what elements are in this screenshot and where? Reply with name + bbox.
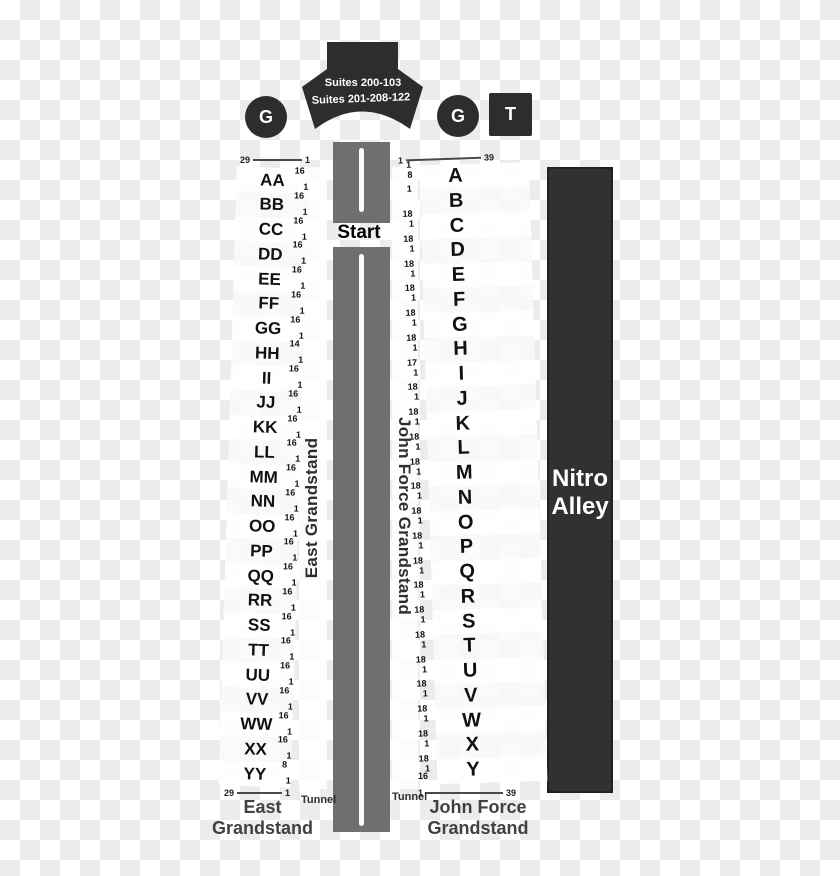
- seat-num-upper: 18: [404, 456, 420, 466]
- row-label: F: [423, 287, 496, 312]
- seat-num-upper: 16: [286, 264, 302, 274]
- seat-num-upper: 16: [289, 165, 305, 175]
- seat-num-lower: 1: [409, 515, 423, 525]
- john-force-bottom-label: John Force Grandstand: [410, 797, 546, 839]
- john-force-row-G[interactable]: G181: [424, 310, 535, 338]
- seat-num-lower: 1: [410, 565, 424, 575]
- start-line-label: Start: [329, 222, 389, 244]
- row-label: N: [429, 485, 502, 510]
- seat-num-upper: 16: [285, 289, 301, 299]
- seat-num-upper: 16: [275, 635, 291, 645]
- seat-num-upper: 16: [282, 388, 298, 398]
- gate-badge-right-label: G: [451, 106, 465, 127]
- seat-num-upper: 16: [278, 536, 294, 546]
- seat-num-upper: 18: [409, 629, 425, 639]
- row-label: E: [422, 263, 495, 288]
- seat-num-upper: 16: [273, 685, 289, 695]
- seat-num-lower: 1: [403, 342, 417, 352]
- seat-num-upper: 18: [411, 703, 427, 713]
- seat-num-upper: 16: [286, 239, 302, 249]
- seat-num-lower: 1: [413, 664, 427, 674]
- seat-num-upper: 18: [410, 654, 426, 664]
- john-force-row-W[interactable]: W181: [435, 706, 546, 734]
- seat-num-lower: 1: [400, 243, 414, 253]
- john-force-row-Y[interactable]: Y181: [437, 755, 548, 783]
- seat-num-upper: 16: [283, 363, 299, 373]
- seat-num-upper: 18: [402, 406, 418, 416]
- seat-num-upper: 18: [408, 604, 424, 614]
- seat-num-upper: 18: [402, 382, 418, 392]
- row-label: Y: [437, 757, 510, 782]
- gate-badge-left[interactable]: G: [245, 96, 287, 138]
- seat-num-lower: 1: [409, 540, 423, 550]
- row-label: H: [424, 337, 497, 362]
- john-force-row-F[interactable]: F181: [423, 285, 534, 313]
- seat-num-upper: 18: [399, 308, 415, 318]
- nitro-alley-label: Nitro Alley: [549, 465, 611, 521]
- seat-num-upper: 16: [276, 586, 292, 596]
- seat-num-upper: 16: [284, 314, 300, 324]
- seat-num-upper: 16: [288, 190, 304, 200]
- row-label: L: [427, 436, 500, 461]
- seat-num-lower: 1: [411, 614, 425, 624]
- john-force-row-N[interactable]: N181: [429, 483, 540, 511]
- john-force-row-A[interactable]: A18: [419, 162, 530, 190]
- seat-num-upper: 18: [399, 283, 415, 293]
- seat-num-upper: 18: [405, 481, 421, 491]
- seat-num-lower: 1: [404, 367, 418, 377]
- john-force-row-E[interactable]: E181: [422, 261, 533, 289]
- row-label: Q: [431, 560, 504, 585]
- john-force-row-M[interactable]: M181: [428, 458, 539, 486]
- row-label: T: [433, 634, 506, 659]
- seat-num-lower: 1: [277, 775, 291, 785]
- seat-num-upper: 16: [281, 413, 297, 423]
- gate-badge-right[interactable]: G: [437, 95, 479, 137]
- john-force-rows[interactable]: A18B1C181D181E181F181G181H181I171J181K18…: [395, 158, 554, 797]
- seat-num-lower: 1: [414, 689, 428, 699]
- seat-num-lower: 1: [400, 219, 414, 229]
- east-grandstand-bottom-label: East Grandstand: [200, 797, 325, 839]
- row-label: A: [419, 164, 492, 189]
- john-force-row-K[interactable]: K181: [426, 409, 537, 437]
- row-label: P: [430, 535, 503, 560]
- range-line: [237, 792, 282, 794]
- john-force-row-V[interactable]: V181: [435, 681, 546, 709]
- track-centerline-bottom: [359, 254, 364, 826]
- seat-num-lower: 1: [406, 416, 420, 426]
- east-row-YY[interactable]: YY81: [219, 760, 292, 787]
- seat-num-upper: 16: [281, 437, 297, 447]
- seat-num-upper: 16: [277, 561, 293, 571]
- seat-num-upper: 17: [401, 357, 417, 367]
- john-force-row-P[interactable]: P181: [430, 533, 541, 561]
- john-force-row-L[interactable]: L181: [427, 434, 538, 462]
- seat-num-upper: 18: [410, 679, 426, 689]
- seat-num-upper: 1: [396, 184, 412, 194]
- row-label: C: [421, 213, 494, 238]
- seat-num-upper: 16: [272, 710, 288, 720]
- row-label: W: [435, 708, 508, 733]
- seat-num-upper: 16: [287, 215, 303, 225]
- row-label: D: [421, 238, 494, 263]
- east-grandstand-rows[interactable]: AA161BB161CC161DD161EE161FF161GG161HH141…: [206, 161, 335, 796]
- row-label: X: [436, 733, 509, 758]
- seat-num-upper: 18: [407, 580, 423, 590]
- seat-num-lower: 1: [412, 639, 426, 649]
- seat-num-upper: 16: [280, 462, 296, 472]
- seat-num-lower: 1: [415, 738, 429, 748]
- seat-num-lower: 1: [407, 466, 421, 476]
- john-force-row-C[interactable]: C181: [421, 211, 532, 239]
- gate-badge-left-label: G: [259, 107, 273, 128]
- john-force-trailing-seat-num: 16: [412, 771, 428, 781]
- seat-num-lower: 8: [398, 169, 412, 179]
- row-label: S: [432, 609, 505, 634]
- seat-num-upper: 18: [405, 505, 421, 515]
- seat-num-upper: 18: [400, 332, 416, 342]
- range-line: [426, 792, 503, 794]
- john-force-row-B[interactable]: B1: [420, 186, 531, 214]
- seat-num-upper: 18: [413, 753, 429, 763]
- seat-num-upper: 18: [403, 431, 419, 441]
- seat-num-upper: 16: [272, 734, 288, 744]
- seat-num-upper: 8: [271, 759, 287, 769]
- john-force-row-S[interactable]: S181: [432, 607, 543, 635]
- seat-num-lower: 1: [403, 318, 417, 328]
- row-label: J: [426, 386, 499, 411]
- seat-num-lower: 1: [406, 441, 420, 451]
- range-line: [253, 159, 302, 161]
- row-label: B: [420, 188, 493, 213]
- row-label: O: [429, 510, 502, 535]
- east-top-range: 291: [240, 154, 310, 166]
- seat-num-upper: 14: [284, 338, 300, 348]
- seat-num-upper: 16: [279, 487, 295, 497]
- tower-badge[interactable]: T: [489, 93, 532, 136]
- john-force-row-T[interactable]: T181: [433, 632, 544, 660]
- row-label: I: [425, 362, 498, 387]
- row-label: V: [435, 683, 508, 708]
- john-force-row-U[interactable]: U181: [434, 656, 545, 684]
- seat-num-upper: 16: [275, 611, 291, 621]
- john-force-row-J[interactable]: J181: [426, 384, 537, 412]
- john-force-row-O[interactable]: O181: [429, 508, 540, 536]
- seat-num-lower: 1: [414, 713, 428, 723]
- nitro-alley-section[interactable]: Nitro Alley: [547, 167, 613, 793]
- john-force-row-X[interactable]: X181: [436, 731, 547, 759]
- seat-num-upper: 16: [278, 512, 294, 522]
- seat-num-lower: 1: [411, 590, 425, 600]
- seat-num-lower: 1: [408, 491, 422, 501]
- john-force-row-H[interactable]: H181: [424, 335, 535, 363]
- seat-num-upper: 16: [274, 660, 290, 670]
- seat-num-lower: 1: [401, 268, 415, 278]
- seat-num-upper: 18: [407, 555, 423, 565]
- row-label: K: [426, 411, 499, 436]
- seat-num-upper: 18: [398, 258, 414, 268]
- john-force-row-R[interactable]: R181: [432, 582, 543, 610]
- suites-label-1: Suites 200-103: [298, 77, 428, 89]
- seat-num-upper: 18: [406, 530, 422, 540]
- seat-num-upper: 18: [396, 209, 412, 219]
- seat-num-lower: 1: [405, 392, 419, 402]
- john-force-row-I[interactable]: I171: [425, 360, 536, 388]
- seating-chart: Suites 200-103 Suites 201-208-122 G G T …: [0, 0, 840, 876]
- row-label: U: [434, 659, 507, 684]
- track-centerline-top: [359, 148, 364, 212]
- row-label: R: [432, 584, 505, 609]
- seat-num-upper: 18: [397, 233, 413, 243]
- row-label: M: [428, 461, 501, 486]
- john-force-row-D[interactable]: D181: [421, 236, 532, 264]
- john-force-row-Q[interactable]: Q181: [431, 557, 542, 585]
- seat-num-lower: 1: [402, 293, 416, 303]
- range-line: [406, 157, 481, 162]
- seat-num-upper: 18: [412, 728, 428, 738]
- row-label: G: [424, 312, 497, 337]
- tower-badge-label: T: [505, 104, 516, 125]
